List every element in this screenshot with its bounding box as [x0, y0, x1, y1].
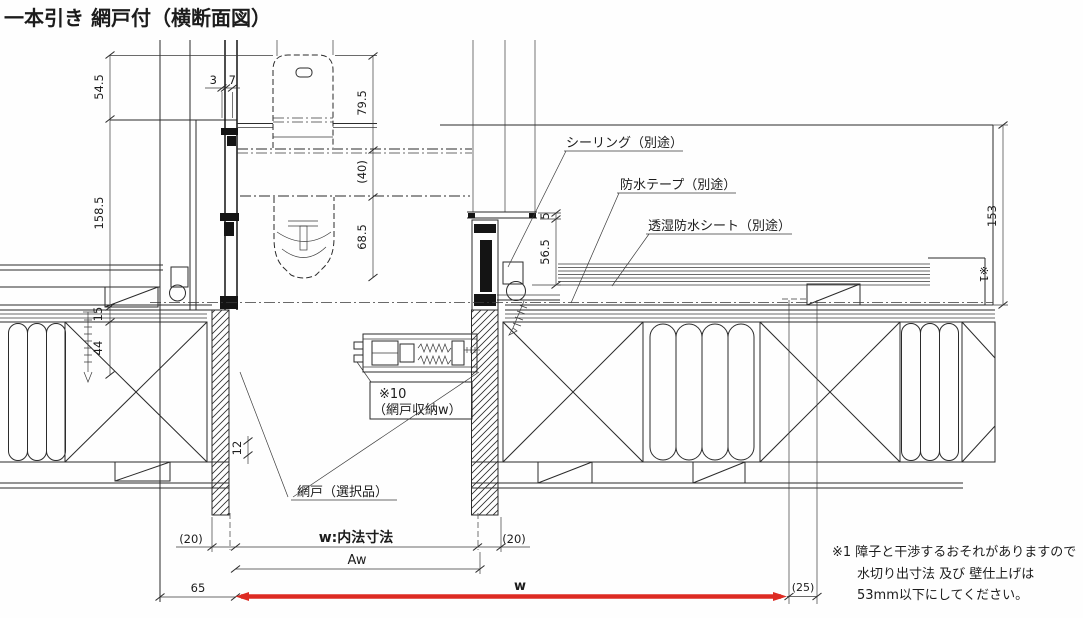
exterior-handle	[273, 40, 333, 148]
dim-12: 12	[230, 441, 244, 456]
dim-frame-depth: 158.5	[92, 197, 106, 230]
note-line1: ※1 障子と干渉するおそれがありますので	[832, 545, 1076, 560]
wall-ref-label: ※1	[977, 266, 990, 282]
screen-storage-label: （網戸収納w）	[373, 403, 462, 418]
wall-right: ※1	[440, 40, 995, 604]
wall-left	[0, 40, 229, 602]
sealant-backer-hatch	[503, 262, 523, 284]
callout-screen-storage: ※10 （網戸収納w）	[357, 362, 472, 419]
dim-aw: Aw	[348, 553, 367, 568]
waterproof-sheet-layers	[558, 264, 930, 285]
jamb-casing-hatched	[472, 310, 499, 515]
callout-tape-label: 防水テープ（別途）	[620, 177, 736, 193]
sliding-panel-phantom	[150, 149, 993, 303]
screen-door-mechanism	[354, 334, 480, 372]
page-title: 一本引き 網戸付（横断面図）	[4, 6, 271, 30]
insulation-batts	[9, 324, 66, 461]
window-frame-left	[110, 40, 377, 550]
dim-20-right: (20)	[502, 532, 526, 546]
interior-handle	[274, 197, 334, 278]
cross-section-drawing: 一本引き 網戸付（横断面図）	[0, 0, 1083, 618]
wood-stud	[503, 322, 643, 462]
screen-door-label: 網戸（選択品）	[297, 485, 388, 500]
screen-ref-no-label: ※10	[379, 387, 406, 402]
red-arrow-left	[236, 592, 250, 601]
dim-5: 5	[538, 212, 552, 219]
dim-inner-width: w:内法寸法	[319, 529, 394, 546]
callout-waterproof-tape: 防水テープ（別途）	[571, 177, 736, 303]
insulation-batts	[902, 324, 959, 461]
dim-65: 65	[191, 581, 206, 595]
jamb-casing-hatched	[212, 310, 229, 515]
w-dimension-red-line: w	[236, 579, 788, 601]
dim-79-5: 79.5	[355, 90, 369, 116]
callout-waterproof-sheet: 透湿防水シート（別途）	[612, 218, 792, 286]
insulation-batts	[650, 324, 754, 460]
note-line2: 水切り出寸法 及び 壁仕上げは	[857, 567, 1034, 582]
dim-7: 7	[229, 73, 236, 87]
technical-drawing-page: 一本引き 網戸付（横断面図）	[0, 0, 1083, 618]
dim-w: w	[514, 579, 526, 594]
dim-15: 15	[91, 307, 105, 322]
spring	[418, 344, 451, 352]
dim-top-offset: 54.5	[92, 74, 106, 100]
dim-68-5: 68.5	[355, 224, 369, 250]
dim-153: 153	[985, 205, 999, 227]
spring	[418, 356, 451, 364]
wood-stud	[760, 322, 900, 462]
callout-sealing-label: シーリング（別途）	[566, 135, 683, 151]
dim-25: (25)	[792, 581, 815, 594]
handle-button	[296, 68, 312, 77]
dim-20-left: (20)	[179, 532, 203, 546]
dim-56-5: 56.5	[538, 239, 552, 265]
sealant-backer-hatch	[171, 267, 188, 287]
callout-sheet-label: 透湿防水シート（別途）	[648, 218, 791, 234]
wood-stud	[962, 322, 995, 462]
callout-screen-door: 網戸（選択品）	[240, 372, 479, 500]
wall-finish-ref-box: ※1	[928, 258, 990, 305]
dim-40: (40)	[355, 160, 369, 184]
dim-44: 44	[91, 341, 105, 356]
note: ※1 障子と干渉するおそれがありますので 水切り出寸法 及び 壁仕上げは 53m…	[832, 545, 1076, 603]
note-line3: 53mm以下にしてください。	[857, 588, 1028, 603]
wood-stud	[65, 322, 207, 462]
dim-3: 3	[210, 73, 217, 87]
